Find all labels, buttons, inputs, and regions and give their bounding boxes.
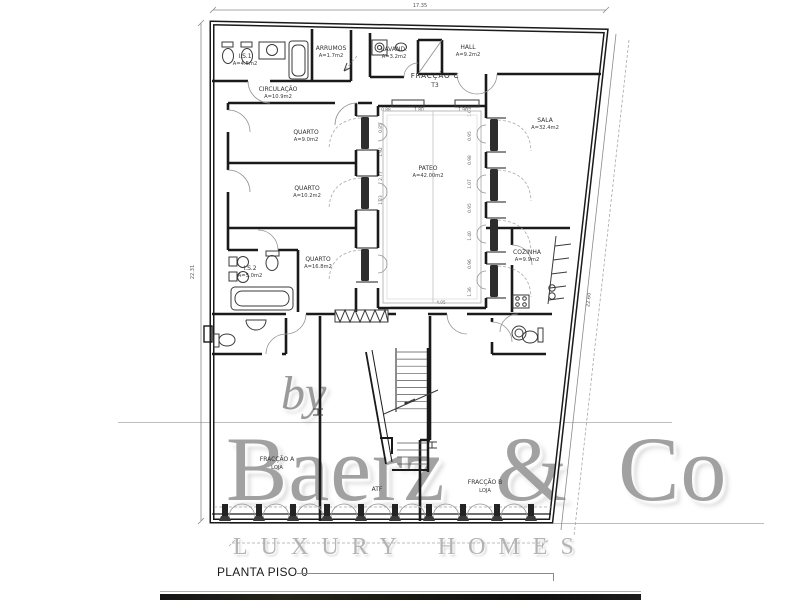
room-label-hall: HALL	[460, 44, 476, 51]
colonnade	[212, 504, 551, 521]
door-leaf	[361, 249, 369, 281]
room-label-arrumos: ARRUMOS	[316, 45, 347, 52]
title-underline	[297, 573, 554, 574]
column	[426, 504, 432, 516]
door-leaf	[490, 265, 498, 297]
colonnade-columns	[219, 504, 537, 521]
room-area-lavand: A=3.2m2	[382, 54, 407, 60]
patio-door-modules	[329, 116, 531, 298]
bottom-strip	[160, 594, 641, 600]
column	[460, 504, 466, 516]
room-label-fraccao-b: FRACÇÃO B	[468, 479, 503, 486]
dimension-label: 0.96	[467, 259, 473, 269]
door-swing	[399, 504, 412, 517]
dimension-label: 1.40	[467, 231, 473, 241]
door-swing	[242, 504, 255, 517]
room-label-quarto3: QUARTO	[305, 256, 331, 263]
dimension-label: 0.95	[467, 131, 473, 141]
door-swing	[501, 504, 514, 517]
floor-plan-drawing: 17.35 22.31 22.60 4.95 0.881.801.960.851…	[0, 0, 800, 600]
bottom-strip-border	[160, 591, 641, 592]
room-label-quarto1: QUARTO	[293, 129, 319, 136]
room-label-cozinha: COZINHA	[513, 249, 542, 256]
room-label-circulacao: CIRCULAÇÃO	[259, 86, 298, 93]
room-label-is1: I.S.1	[238, 53, 251, 60]
room-area-fraccao-a: LOJA	[271, 465, 283, 471]
fraction-c-label: FRACÇÃO C	[411, 71, 460, 80]
door-swing	[331, 504, 344, 517]
floor-plan-page: by Baerz & Co LUXURY HOMES 17.35 22.31 2…	[0, 0, 800, 600]
column	[358, 504, 364, 516]
door-swing	[365, 504, 378, 517]
room-area-cozinha: A=9.9m2	[515, 257, 540, 263]
room-label-quarto2: QUARTO	[294, 185, 320, 192]
room-label-atf: ATF	[372, 486, 383, 493]
room-area-pateo: A=42.00m2	[412, 173, 443, 179]
room-area-is1: A=4.5m2	[233, 61, 258, 67]
door-swing	[446, 504, 459, 517]
door-swing	[514, 504, 527, 517]
door-swing	[480, 504, 493, 517]
door-swing	[498, 220, 531, 251]
dimension-label: 0.98	[467, 155, 473, 165]
door-swing	[467, 504, 480, 517]
door-swing	[229, 504, 242, 517]
column	[222, 504, 228, 516]
dimension-label: 1.36	[467, 287, 473, 297]
door-leaf	[490, 169, 498, 201]
door-swing	[498, 170, 531, 201]
dim-right-length: 22.60	[585, 292, 592, 307]
door-swing	[498, 266, 531, 297]
plan-title: PLANTA PISO 0	[217, 565, 308, 579]
door-swing	[263, 504, 276, 517]
room-label-fraccao-a: FRACÇÃO A	[260, 456, 295, 463]
column	[528, 504, 534, 516]
dimension-label: 1.07	[467, 179, 473, 189]
room-area-fraccao-b: LOJA	[479, 488, 491, 494]
door-swing	[498, 120, 531, 151]
column	[256, 504, 262, 516]
dim-top-width: 17.35	[413, 3, 427, 9]
patio-dimension-labels: 0.881.801.960.851.922.771.231.030.950.98…	[378, 107, 473, 297]
room-label-is2: I.S.2	[243, 265, 256, 272]
patio-courtyard	[383, 100, 481, 303]
door-swing	[412, 504, 425, 517]
dim-left-height: 22.31	[190, 265, 196, 279]
staircase	[366, 348, 438, 472]
dimension-label: 1.96	[458, 107, 468, 113]
entry-arrow	[344, 63, 350, 71]
room-label-lavand: LAVAND.	[381, 46, 407, 53]
stair-treads	[397, 352, 427, 464]
door-leaf	[490, 219, 498, 251]
interior-walls	[212, 29, 601, 521]
room-area-is2: A=5.0m2	[238, 273, 263, 279]
door-swing	[276, 504, 289, 517]
column	[290, 504, 296, 516]
room-area-circulacao: A=10.9m2	[264, 94, 292, 100]
door-swing	[433, 504, 446, 517]
column	[324, 504, 330, 516]
door-swing	[378, 504, 391, 517]
room-area-arrumos: A=1.7m2	[319, 53, 344, 59]
dimension-label: 1.80	[414, 107, 424, 113]
door-leaf	[361, 117, 369, 149]
door-swing	[329, 118, 361, 149]
door-swing	[329, 250, 361, 281]
hatch-symbol	[335, 310, 388, 322]
room-area-hall: A=9.2m2	[456, 52, 481, 58]
room-label-sala: SALA	[537, 117, 554, 124]
room-area-quarto3: A=16.8m2	[304, 264, 332, 270]
column	[392, 504, 398, 516]
title-underline-hook	[553, 573, 554, 581]
room-area-quarto2: A=10.2m2	[293, 193, 321, 199]
column	[494, 504, 500, 516]
beam-symbol	[313, 409, 323, 415]
room-label-pateo: PATEO	[418, 165, 437, 172]
stair-direction-dot	[404, 401, 407, 404]
door-leaf	[361, 177, 369, 209]
door-swing	[344, 504, 357, 517]
door-swing	[297, 504, 310, 517]
door-leaf	[490, 119, 498, 151]
fraction-c-type: T3	[430, 82, 439, 89]
dimension-label: 0.95	[467, 203, 473, 213]
door-swing	[329, 178, 361, 209]
room-area-sala: A=32.4m2	[531, 125, 559, 131]
room-area-quarto1: A=9.0m2	[294, 137, 319, 143]
